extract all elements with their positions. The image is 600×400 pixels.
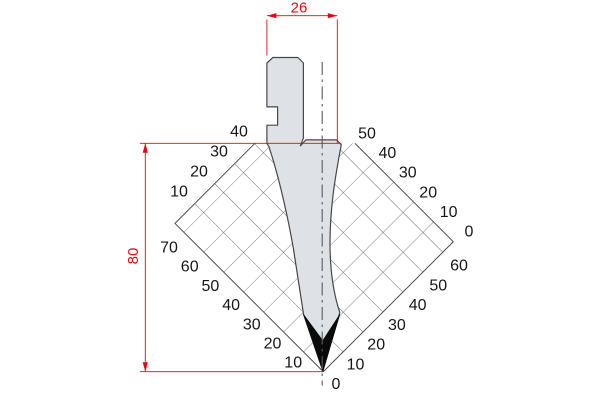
- grid-scale-label: 30: [210, 144, 228, 161]
- width-dimension-label: 26: [291, 0, 308, 17]
- grid-scale-label: 70: [160, 240, 178, 257]
- grid-scale-label: 50: [358, 126, 376, 143]
- grid-scale-label: 10: [284, 355, 302, 372]
- arrow-down-icon: [143, 362, 148, 372]
- grid-scale-label: 30: [243, 316, 261, 333]
- grid-scale-label: 60: [181, 259, 199, 276]
- grid-scale-label: 40: [409, 297, 427, 314]
- grid-scale-label: 50: [429, 277, 447, 294]
- grid-scale-label: 40: [222, 297, 240, 314]
- grid-origin-label: 0: [332, 376, 341, 393]
- drawing-canvas: 26 80 4030201070605040302010504030201006…: [0, 0, 600, 400]
- arrow-right-icon: [328, 13, 338, 18]
- grid-scale-label: 20: [367, 337, 385, 354]
- grid-scale-label: 0: [465, 224, 474, 241]
- grid-scale-label: 10: [347, 357, 365, 374]
- arrow-left-icon: [267, 13, 277, 18]
- grid-scale-label: 20: [264, 336, 282, 353]
- grid-scale-label: 20: [190, 164, 208, 181]
- grid-scale-label: 10: [170, 184, 188, 201]
- punch-technical-drawing: 26 80 4030201070605040302010504030201006…: [0, 0, 600, 400]
- grid-scale-label: 40: [230, 124, 248, 141]
- height-dimension-label: 80: [125, 248, 142, 265]
- grid-scale-label: 40: [379, 145, 397, 162]
- grid-scale-label: 10: [440, 204, 458, 221]
- grid-scale-label: 20: [419, 184, 437, 201]
- grid-scale-label: 30: [399, 165, 417, 182]
- grid-scale-label: 50: [202, 278, 220, 295]
- grid-scale-label: 60: [450, 258, 468, 275]
- arrow-up-icon: [143, 143, 148, 153]
- grid-scale-label: 30: [388, 317, 406, 334]
